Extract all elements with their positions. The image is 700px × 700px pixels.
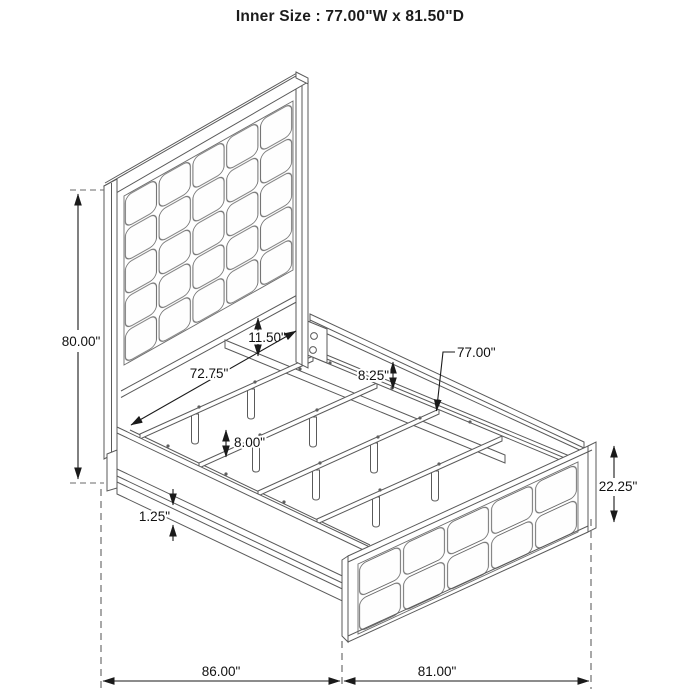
headboard-left-post [104, 179, 117, 491]
footboard-left-cap [342, 556, 348, 642]
headboard-tufted-grid [124, 101, 293, 365]
dim-label-headboard-height: 80.00" [62, 334, 101, 349]
dim-label-side-rail-height: 8.25" [358, 368, 389, 383]
headboard-panel [124, 101, 293, 365]
support-leg [310, 417, 317, 447]
support-leg [248, 389, 255, 419]
dim-label-slat-length: 77.00" [457, 345, 496, 360]
support-leg [432, 471, 439, 501]
footboard-right-cap [588, 442, 596, 532]
dim-footboard-height: 22.25" [599, 446, 638, 522]
dim-label-overall-length: 86.00" [202, 664, 241, 679]
dim-label-rail-lip-thickness: 1.25" [139, 509, 170, 524]
footboard [342, 442, 596, 642]
dim-overall-length: 86.00" [103, 664, 340, 681]
dim-headboard-gap: 11.50" [248, 318, 286, 356]
slat [258, 409, 439, 496]
support-leg [313, 470, 320, 500]
dim-label-overall-width: 81.00" [418, 664, 457, 679]
bed-line-drawing: 80.00" 11.50" 72.75" 8.25" 77.00" 8.00" … [0, 0, 700, 700]
dim-label-support-leg-height: 8.00" [234, 435, 265, 450]
dim-label-side-rail-span: 72.75" [190, 366, 229, 381]
support-leg [371, 443, 378, 473]
dim-label-footboard-height: 22.25" [599, 479, 638, 494]
headboard-right-post [296, 74, 308, 368]
dim-overall-width: 81.00" [344, 664, 589, 681]
dim-label-headboard-gap: 11.50" [248, 330, 286, 345]
support-leg [192, 414, 199, 444]
bed-dimension-diagram: Inner Size : 77.00"W x 81.50"D [0, 0, 700, 700]
dim-headboard-height: 80.00" [62, 190, 104, 483]
support-leg [373, 497, 380, 527]
